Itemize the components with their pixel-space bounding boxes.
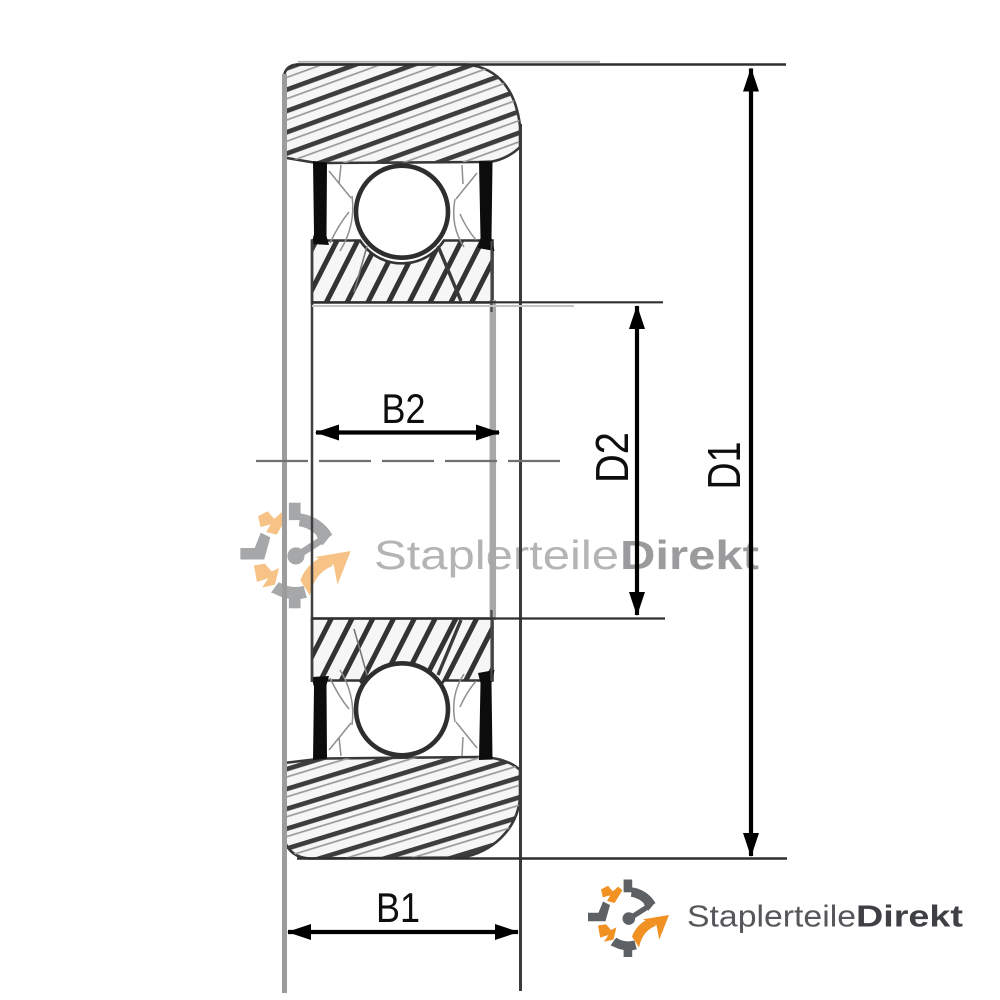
svg-text:Staplerteile: Staplerteile <box>374 532 619 578</box>
svg-text:D2: D2 <box>586 432 638 483</box>
svg-text:Direkt: Direkt <box>620 532 759 578</box>
svg-text:Staplerteile: Staplerteile <box>687 899 856 934</box>
svg-text:D1: D1 <box>698 442 750 490</box>
svg-text:Direkt: Direkt <box>856 899 963 934</box>
svg-text:B1: B1 <box>376 884 420 931</box>
svg-text:B2: B2 <box>382 385 426 432</box>
